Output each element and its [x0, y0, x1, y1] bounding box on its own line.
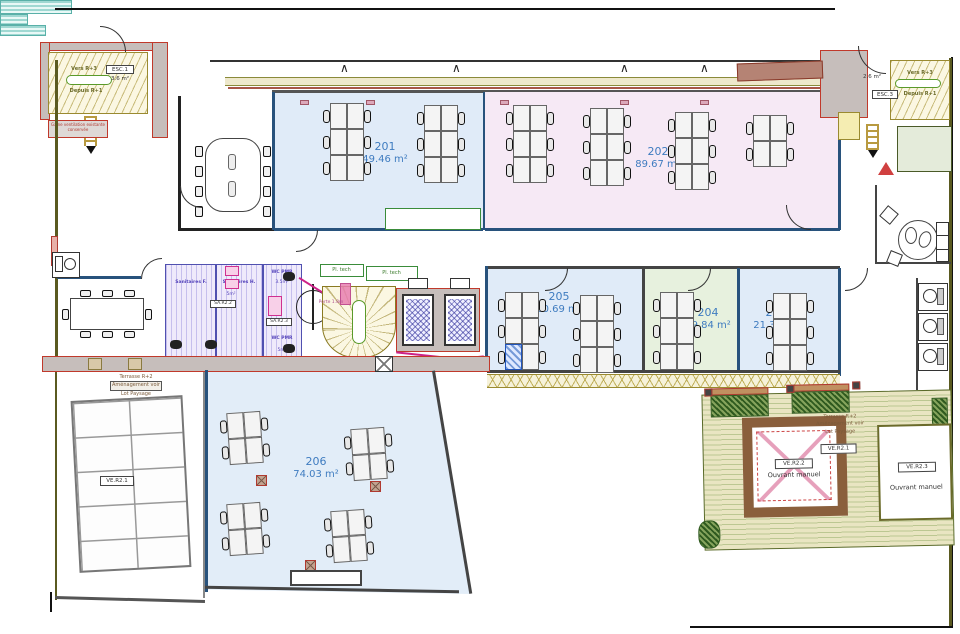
roof-window-mark: ∧	[340, 62, 349, 74]
elevator-hatch	[448, 299, 472, 341]
skylight-brown-note: Ouvrant manuel	[763, 471, 825, 480]
desk	[245, 528, 264, 555]
arrow-down	[868, 150, 878, 158]
planter-plants	[791, 391, 849, 414]
wall-right-zone-v	[875, 185, 877, 263]
wc-unit	[918, 283, 948, 311]
desk	[580, 321, 597, 347]
desk	[597, 347, 614, 373]
desk	[424, 105, 441, 131]
wall-205-top	[485, 266, 840, 269]
stair-area: 3.6 m²	[106, 76, 134, 83]
wall-202-bottom	[485, 228, 840, 231]
desk	[675, 138, 692, 164]
room-yellow	[838, 112, 860, 140]
wc-bowl	[923, 349, 937, 363]
roof-window-mark: ∧	[620, 62, 629, 74]
planter-plants	[710, 394, 768, 417]
desk	[347, 509, 366, 536]
desk-cluster	[226, 411, 264, 465]
sa-r23-tag: SA.R2.3	[266, 318, 292, 326]
wall-terrace-206	[203, 372, 205, 598]
door-arc	[100, 26, 126, 52]
shelf	[936, 222, 949, 262]
desk	[243, 502, 262, 529]
terrace-left-text: Terrasse R+2 Aménagement voir Lot Paysag…	[98, 374, 174, 398]
window-mark	[88, 358, 102, 370]
desk-cluster	[513, 105, 547, 183]
desk	[677, 318, 694, 344]
toilet-fixture	[205, 340, 217, 349]
wall-meeting-left	[178, 96, 181, 230]
desk-cluster	[590, 108, 624, 186]
chair	[62, 309, 69, 320]
roof-band-brown	[737, 61, 824, 82]
structural-post	[256, 475, 267, 486]
meeting-table	[205, 138, 261, 212]
terrace-left-line2: Aménagement voir	[110, 381, 162, 390]
desk	[675, 112, 692, 138]
terrace-right-text: Terrasse R+2 Aménagement voir Lot Paysag…	[808, 413, 872, 436]
wall-201-left	[272, 92, 275, 230]
socket	[300, 100, 309, 105]
frame-bottom	[690, 626, 953, 628]
wc-unit	[918, 313, 948, 341]
desk-cluster	[660, 292, 694, 370]
ladder-symbol	[866, 124, 879, 150]
socket	[700, 100, 709, 105]
chair	[102, 290, 113, 297]
rect-table	[70, 298, 144, 330]
pl-tech-1: Pl. tech	[320, 264, 364, 277]
spiral-stair-core	[352, 300, 366, 344]
desk	[522, 292, 539, 318]
stair-down-label: Depuis R+1	[62, 88, 110, 95]
desk	[660, 292, 677, 318]
chair	[124, 331, 135, 338]
desk	[753, 141, 770, 167]
desk	[350, 428, 369, 455]
desk	[790, 293, 807, 319]
wc-unit	[918, 343, 948, 371]
desk	[243, 411, 262, 438]
desk	[513, 157, 530, 183]
gaine-note-label: Gaine ventilation existante conservée	[50, 123, 106, 133]
structural-post	[370, 481, 381, 492]
desk-cluster	[350, 427, 388, 481]
desk	[367, 427, 386, 454]
desk	[607, 134, 624, 160]
skylight-white-note: Ouvrant manuel	[885, 484, 947, 493]
frame-top	[55, 8, 835, 10]
desk	[590, 134, 607, 160]
planter-plants	[698, 520, 721, 548]
desk	[580, 295, 597, 321]
stair-up-label: Vers R+3	[62, 66, 106, 73]
desk	[677, 344, 694, 370]
wc-cistern	[937, 288, 944, 305]
wall-left	[55, 60, 58, 360]
chair	[80, 290, 91, 297]
chair	[124, 290, 135, 297]
door-arc	[845, 268, 868, 291]
desk	[424, 157, 441, 183]
desk-cluster	[580, 295, 614, 373]
sanitaires-f-label: Sanitaires F.	[168, 280, 214, 286]
sink-fixture	[225, 266, 239, 276]
roof-window-mark: ∧	[700, 62, 709, 74]
chair	[80, 331, 91, 338]
desk	[692, 164, 709, 190]
terrace-right-line3: Lot Paysage	[808, 428, 872, 437]
desk	[245, 437, 264, 464]
socket	[366, 100, 375, 105]
post	[704, 388, 712, 396]
chair	[102, 331, 113, 338]
desk	[330, 103, 347, 129]
desk	[660, 318, 677, 344]
chair	[195, 166, 203, 177]
pl-tech-1-label: Pl. tech	[321, 267, 362, 274]
desk	[590, 160, 607, 186]
desk	[505, 318, 522, 344]
desk	[770, 141, 787, 167]
desk	[369, 453, 388, 480]
chair	[263, 206, 271, 217]
desk	[347, 155, 364, 181]
chair-rotated	[886, 250, 903, 267]
desk-cluster	[330, 103, 364, 181]
terrace-right-group: VE.R2.2 Ouvrant manuel VE.R2.3 Ouvrant m…	[701, 385, 956, 552]
annotation-note	[0, 0, 72, 14]
whiteboard	[385, 208, 481, 230]
wall-terrace-left-bottom	[55, 596, 205, 602]
desk	[522, 344, 539, 370]
desk	[347, 129, 364, 155]
elevator-door	[408, 278, 428, 289]
desk-cluster	[424, 105, 458, 183]
desk	[332, 536, 351, 563]
desk	[677, 292, 694, 318]
desk-cluster	[773, 293, 807, 371]
seat	[905, 227, 917, 244]
socket	[500, 100, 509, 105]
facade-red-line	[228, 87, 848, 89]
desk	[441, 157, 458, 183]
column-mark	[375, 356, 393, 372]
desk	[441, 105, 458, 131]
sink-fixture	[225, 279, 239, 289]
cabinet-door	[55, 256, 63, 272]
room-green	[897, 126, 952, 172]
desk	[349, 535, 368, 562]
desk	[228, 438, 247, 465]
skylight-tag-left: VE.R2.1	[100, 476, 134, 486]
pl-tech-2-label: Pl. tech	[367, 270, 416, 277]
desk	[607, 108, 624, 134]
desk	[607, 160, 624, 186]
toilet-fixture	[283, 272, 295, 281]
toilet-fixture	[283, 344, 295, 353]
wc-cistern	[937, 318, 944, 335]
desk	[773, 293, 790, 319]
wc-bowl	[923, 289, 937, 303]
window-mark	[128, 358, 142, 370]
stair-down-label: Depuis R+1	[896, 91, 944, 98]
chair	[195, 146, 203, 157]
desk-cluster	[226, 502, 264, 556]
roof-line	[210, 60, 850, 62]
stair-tag: ESC.3	[872, 90, 898, 99]
desk	[330, 129, 347, 155]
desk-cluster	[675, 112, 709, 190]
desk	[597, 321, 614, 347]
desk	[513, 105, 530, 131]
survey-cross-v	[312, 284, 314, 330]
stair-flight	[895, 79, 941, 88]
desk	[773, 319, 790, 345]
desk	[660, 344, 677, 370]
desk	[790, 319, 807, 345]
stair-up-label: Vers R+3	[898, 70, 942, 77]
door-arc	[180, 186, 202, 208]
desk	[228, 529, 247, 556]
desk	[330, 155, 347, 181]
desk	[597, 295, 614, 321]
room-206-number: 206	[285, 455, 347, 469]
chair-rotated	[879, 205, 899, 225]
terrace-right-line2: Aménagement voir	[808, 420, 872, 429]
desk	[424, 131, 441, 157]
wall-205-204	[642, 268, 645, 372]
elevator-hatch	[406, 299, 430, 341]
door-arc	[296, 230, 318, 252]
socket	[620, 100, 629, 105]
chair	[263, 186, 271, 197]
desk	[352, 454, 371, 481]
whiteboard	[290, 570, 362, 586]
post	[786, 385, 794, 393]
wc-pmr-2-label: WC PMR	[266, 336, 298, 342]
wall-existing	[820, 50, 868, 118]
post	[852, 381, 860, 389]
desk	[226, 503, 245, 530]
stair-esc3	[890, 60, 950, 120]
desk	[226, 412, 245, 439]
skylight-brown-tag: VE.R2.2	[775, 458, 813, 469]
wall-band-south	[42, 356, 490, 372]
desk-cluster	[330, 509, 368, 563]
desk	[513, 131, 530, 157]
wall-203-right	[838, 268, 841, 376]
desk	[530, 105, 547, 131]
sa-r22-tag: SA.R2.2	[210, 300, 236, 308]
desk	[675, 164, 692, 190]
sink-circle	[64, 258, 76, 270]
desk	[773, 345, 790, 371]
sink-fixture	[268, 296, 282, 316]
toilet-fixture	[170, 340, 182, 349]
porte-label: Porte 1.8m	[318, 300, 344, 306]
arrow-down	[86, 146, 96, 154]
wall-meeting-bottom	[178, 228, 275, 231]
stair-tag: ESC.1	[106, 65, 134, 74]
table-slot	[228, 181, 236, 197]
chair	[263, 166, 271, 177]
sanitary-divider	[262, 264, 264, 358]
desk	[441, 131, 458, 157]
sanitaires-h-label: Sanitaires H.	[216, 280, 262, 286]
wc-bowl	[923, 319, 937, 333]
roof-window-mark: ∧	[452, 62, 461, 74]
frame-corner	[50, 592, 52, 612]
annotation-note	[0, 25, 46, 36]
wall-existing	[152, 42, 168, 138]
desk	[522, 318, 539, 344]
door-arc	[141, 258, 162, 279]
warning-triangle	[878, 162, 894, 175]
wall-204-203	[737, 268, 740, 372]
desk	[770, 115, 787, 141]
wc-cistern	[937, 348, 944, 365]
desk	[580, 347, 597, 373]
highlighted-desk	[505, 344, 522, 370]
floor-plan: ∧ ∧ ∧ ∧ ∧ Vers R+3 Depuis R+1 ESC.1 3.6 …	[0, 0, 960, 634]
stair-area: 2.6 m²	[860, 74, 884, 81]
desk	[347, 103, 364, 129]
room-206-area: 74.03 m²	[285, 469, 347, 482]
elevator-door	[450, 278, 470, 289]
wall-206-left	[205, 370, 208, 592]
desk-cluster	[753, 115, 787, 167]
chair	[145, 309, 152, 320]
table-slot	[228, 154, 236, 170]
desk	[753, 115, 770, 141]
wall-left-lower	[55, 360, 57, 600]
desk	[505, 292, 522, 318]
annotation-note	[0, 14, 28, 25]
chair	[263, 146, 271, 157]
sanitaires-h-area: 5m²	[222, 292, 240, 298]
terrace-left-line1: Terrasse R+2	[98, 374, 174, 381]
desk	[692, 112, 709, 138]
terrace-right-mid-tag: VE.R2.1	[820, 443, 856, 454]
desk	[790, 345, 807, 371]
desk	[692, 138, 709, 164]
desk	[330, 510, 349, 537]
desk	[530, 157, 547, 183]
skylight-white-tag: VE.R2.3	[898, 462, 936, 473]
desk	[530, 131, 547, 157]
room-206-label: 206 74.03 m²	[285, 455, 347, 481]
desk	[590, 108, 607, 134]
